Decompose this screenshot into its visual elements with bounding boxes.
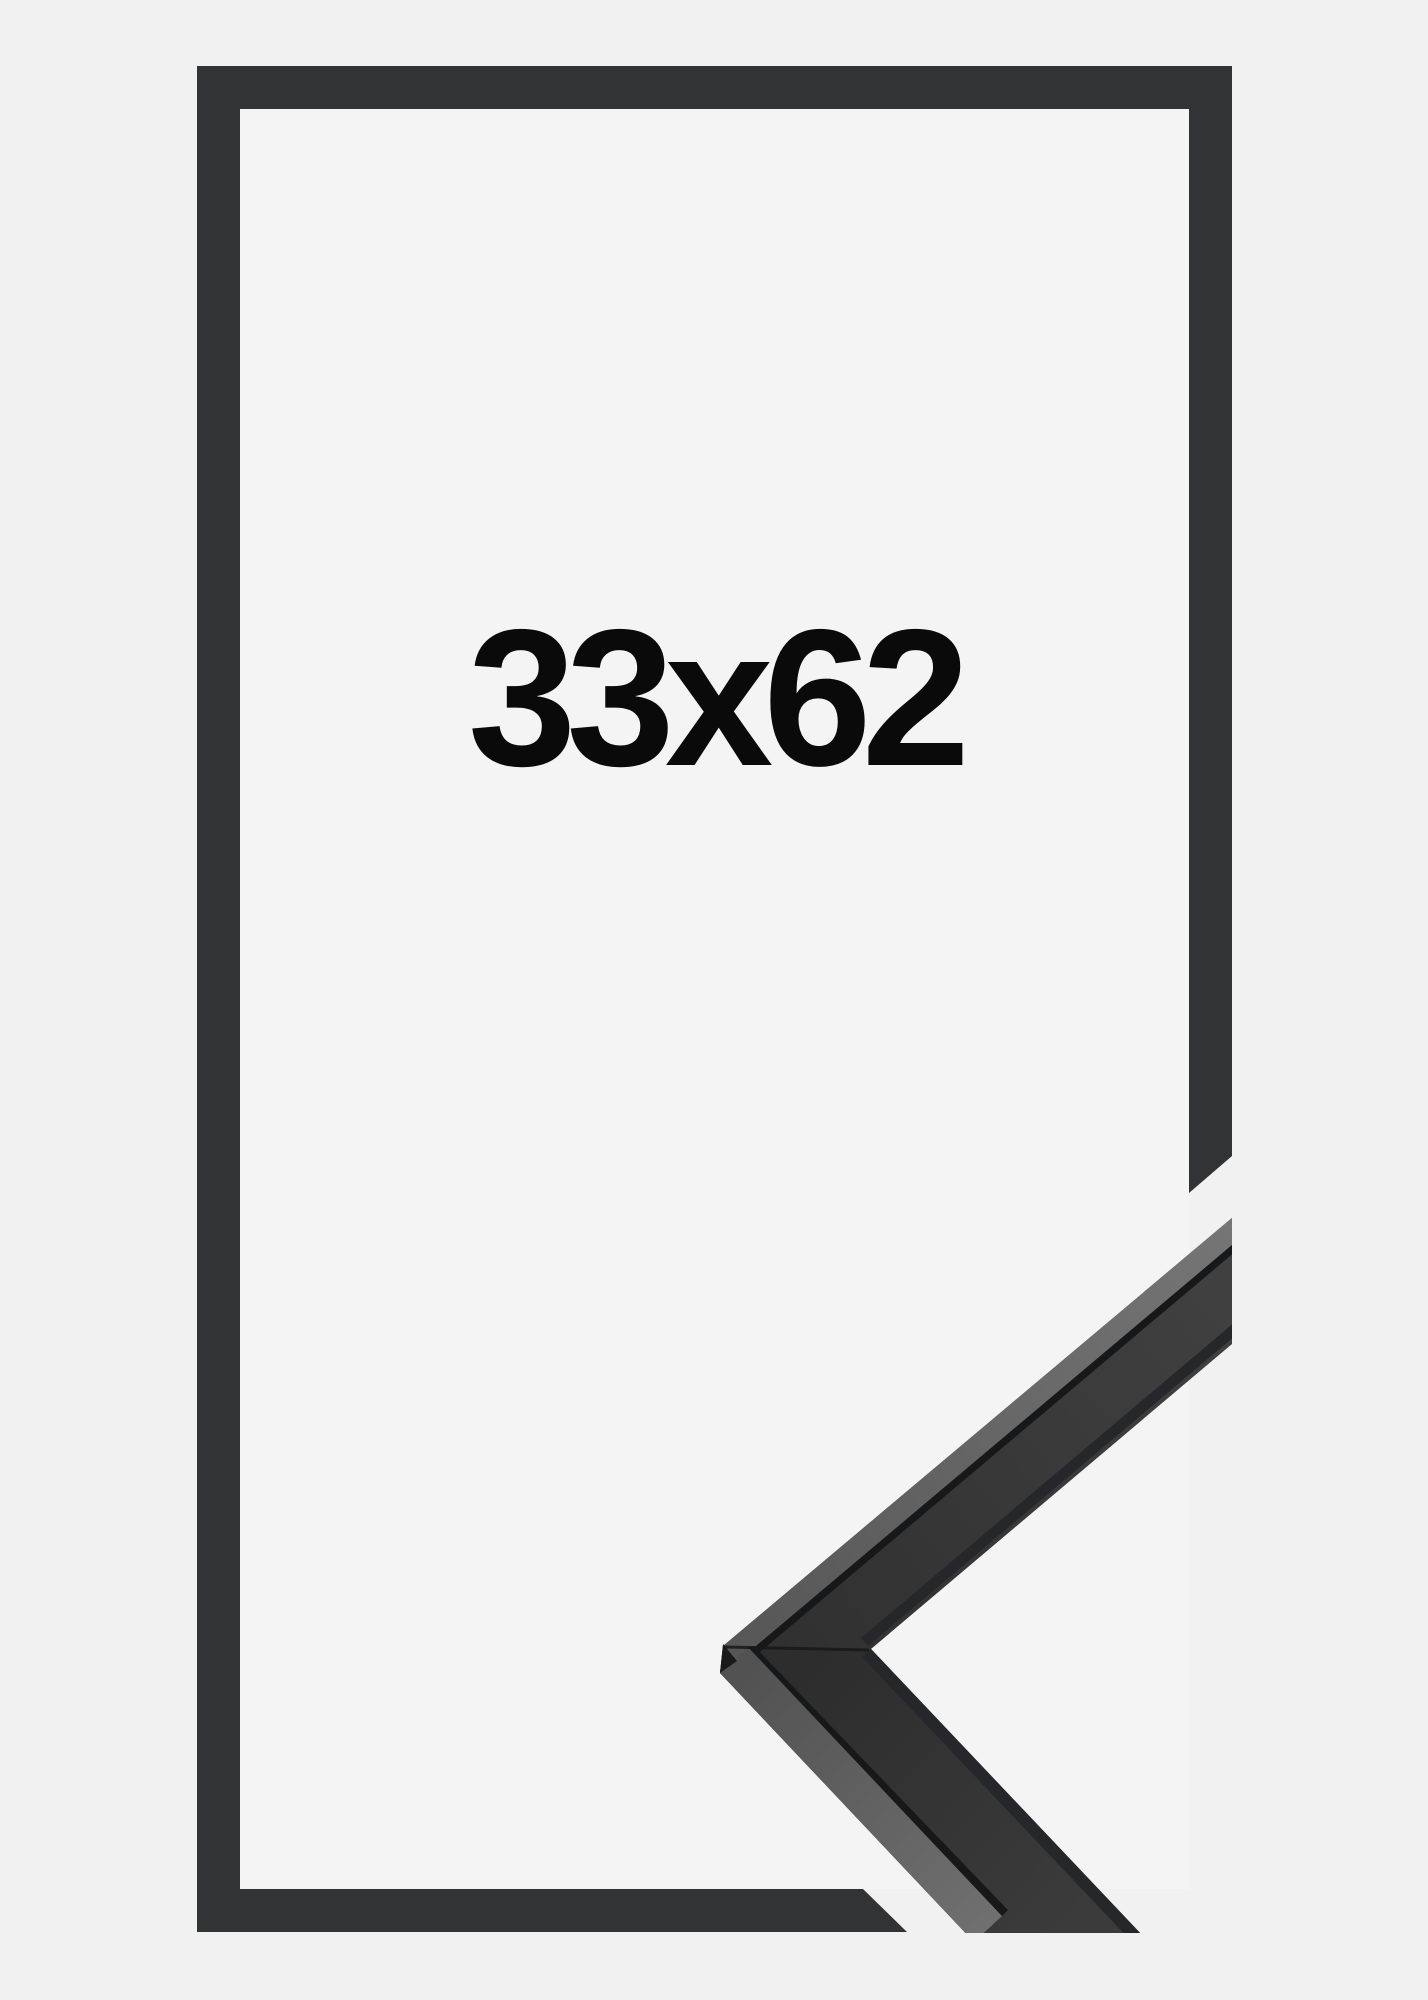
frame-inner-area <box>240 109 1189 1889</box>
size-label: 33x62 <box>0 558 1428 838</box>
product-image: 33x62 <box>0 0 1428 2000</box>
frame-graphic <box>0 0 1428 2000</box>
